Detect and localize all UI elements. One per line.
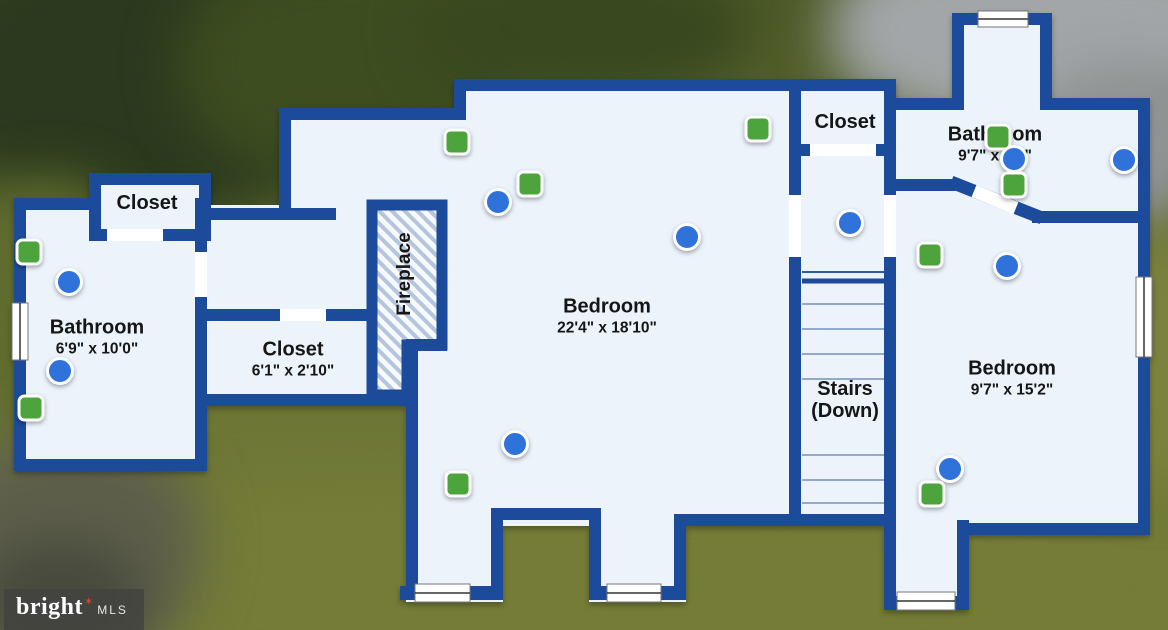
photo-marker-blue[interactable] <box>936 455 964 483</box>
brightmls-brand-text: bright <box>16 594 83 621</box>
photo-marker-blue[interactable] <box>484 188 512 216</box>
photo-marker-blue[interactable] <box>46 357 74 385</box>
photo-marker-green[interactable] <box>917 242 944 269</box>
markers-layer <box>0 0 1168 630</box>
photo-marker-green[interactable] <box>745 116 772 143</box>
photo-marker-blue[interactable] <box>836 209 864 237</box>
photo-marker-blue[interactable] <box>501 430 529 458</box>
brightmls-star-icon: ✶ <box>84 595 93 608</box>
brightmls-watermark: bright ✶ MLS <box>4 589 144 630</box>
photo-marker-green[interactable] <box>18 395 45 422</box>
photo-marker-blue[interactable] <box>993 252 1021 280</box>
photo-marker-green[interactable] <box>919 481 946 508</box>
photo-marker-blue[interactable] <box>1110 146 1138 174</box>
photo-marker-green[interactable] <box>16 239 43 266</box>
photo-marker-blue[interactable] <box>1000 145 1028 173</box>
photo-marker-green[interactable] <box>1001 172 1028 199</box>
photo-marker-green[interactable] <box>445 471 472 498</box>
photo-marker-green[interactable] <box>517 171 544 198</box>
brightmls-mls-text: MLS <box>97 603 128 617</box>
photo-marker-blue[interactable] <box>55 268 83 296</box>
photo-marker-blue[interactable] <box>673 223 701 251</box>
floorplan-image: Closet Bathroom 6'9" x 10'0" Closet 6'1"… <box>0 0 1168 630</box>
photo-marker-green[interactable] <box>444 129 471 156</box>
